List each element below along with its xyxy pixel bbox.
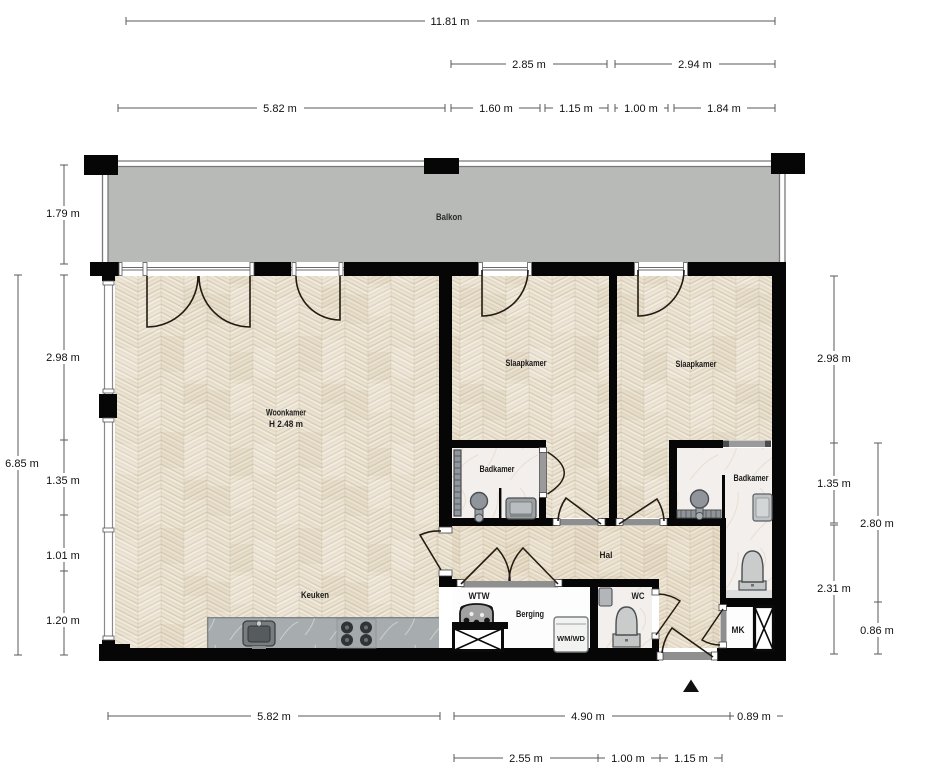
svg-text:WC: WC: [632, 591, 646, 601]
svg-text:1.35 m: 1.35 m: [817, 478, 851, 490]
svg-text:1.35 m: 1.35 m: [46, 475, 80, 487]
svg-text:2.94 m: 2.94 m: [678, 59, 712, 71]
svg-text:WM/WD: WM/WD: [557, 634, 585, 643]
svg-text:0.89 m: 0.89 m: [737, 711, 771, 723]
svg-text:1.15 m: 1.15 m: [559, 103, 593, 115]
svg-text:1.00 m: 1.00 m: [624, 103, 658, 115]
svg-text:H 2.48 m: H 2.48 m: [269, 419, 303, 429]
svg-text:6.85 m: 6.85 m: [5, 458, 39, 470]
svg-text:2.80 m: 2.80 m: [860, 518, 894, 530]
svg-text:1.15 m: 1.15 m: [674, 753, 708, 765]
svg-text:1.79 m: 1.79 m: [46, 208, 80, 220]
svg-text:Slaapkamer: Slaapkamer: [676, 359, 717, 369]
svg-text:Slaapkamer: Slaapkamer: [506, 358, 547, 368]
svg-text:5.82 m: 5.82 m: [257, 711, 291, 723]
svg-text:Balkon: Balkon: [436, 212, 462, 222]
svg-text:2.98 m: 2.98 m: [817, 353, 851, 365]
svg-text:MK: MK: [732, 625, 746, 635]
svg-text:WTW: WTW: [469, 591, 491, 601]
svg-text:2.98 m: 2.98 m: [46, 352, 80, 364]
svg-text:Badkamer: Badkamer: [734, 473, 769, 483]
svg-text:Badkamer: Badkamer: [480, 464, 515, 474]
svg-text:Berging: Berging: [516, 609, 544, 619]
svg-text:1.84 m: 1.84 m: [707, 103, 741, 115]
svg-text:1.20 m: 1.20 m: [46, 615, 80, 627]
svg-text:0.86 m: 0.86 m: [860, 625, 894, 637]
svg-text:11.81 m: 11.81 m: [431, 16, 470, 28]
svg-text:2.55 m: 2.55 m: [509, 753, 543, 765]
svg-text:5.82 m: 5.82 m: [263, 103, 297, 115]
svg-text:Woonkamer: Woonkamer: [266, 408, 306, 418]
svg-text:4.90 m: 4.90 m: [571, 711, 605, 723]
svg-text:Keuken: Keuken: [301, 590, 329, 600]
svg-text:1.00 m: 1.00 m: [611, 753, 645, 765]
svg-text:Hal: Hal: [600, 550, 613, 560]
svg-text:1.01 m: 1.01 m: [46, 550, 80, 562]
svg-text:2.85 m: 2.85 m: [512, 59, 546, 71]
svg-text:2.31 m: 2.31 m: [817, 583, 851, 595]
svg-text:1.60 m: 1.60 m: [479, 103, 513, 115]
